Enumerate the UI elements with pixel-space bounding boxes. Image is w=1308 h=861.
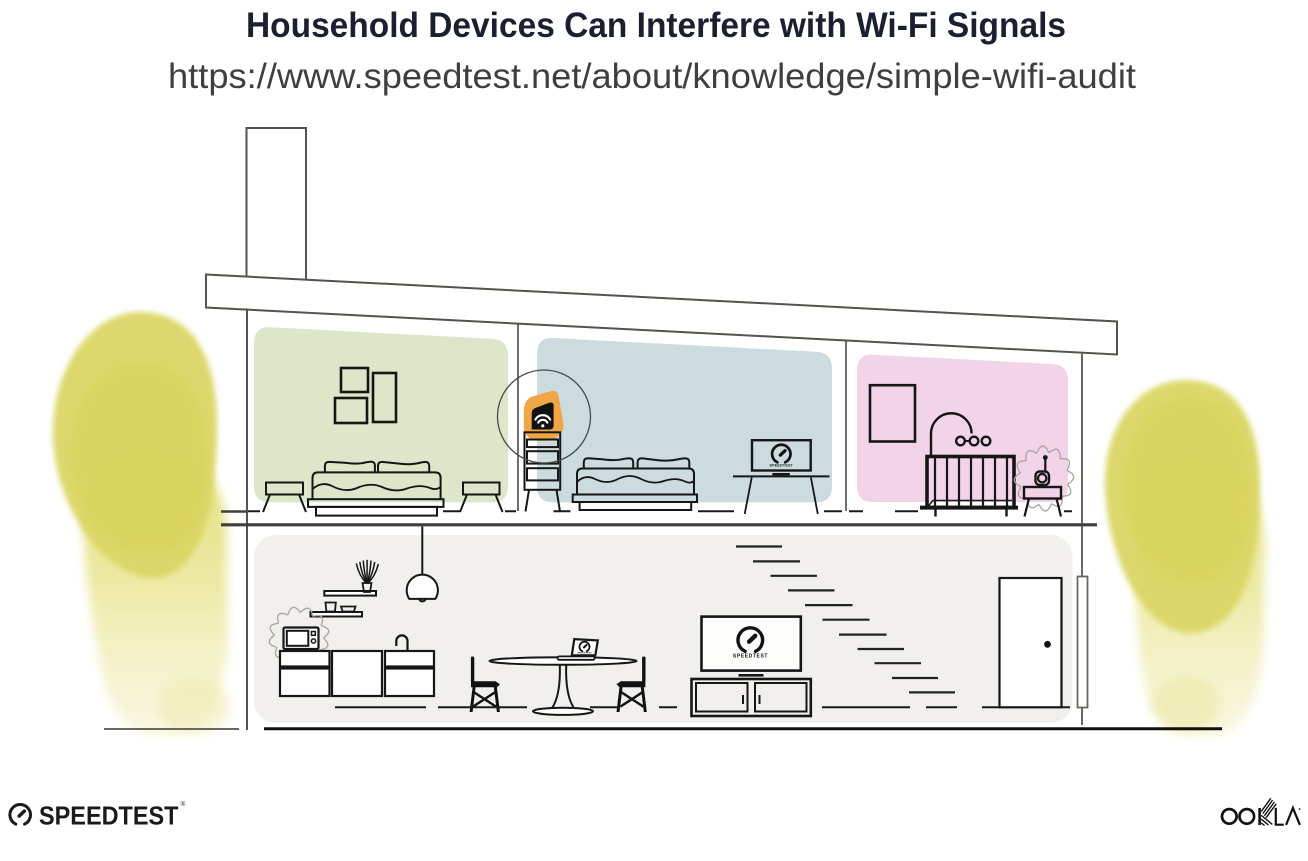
svg-text:SPEEDTEST: SPEEDTEST (733, 654, 768, 660)
svg-text:SPEEDTEST: SPEEDTEST (39, 801, 179, 831)
svg-text:®: ® (181, 800, 186, 808)
svg-text:SPEEDTEST: SPEEDTEST (577, 653, 592, 655)
svg-text:SPEEDTEST: SPEEDTEST (770, 463, 794, 467)
svg-text:Household Devices Can Interfer: Household Devices Can Interfere with Wi-… (246, 6, 1066, 45)
svg-text:https://www.speedtest.net/abou: https://www.speedtest.net/about/knowledg… (168, 57, 1136, 96)
